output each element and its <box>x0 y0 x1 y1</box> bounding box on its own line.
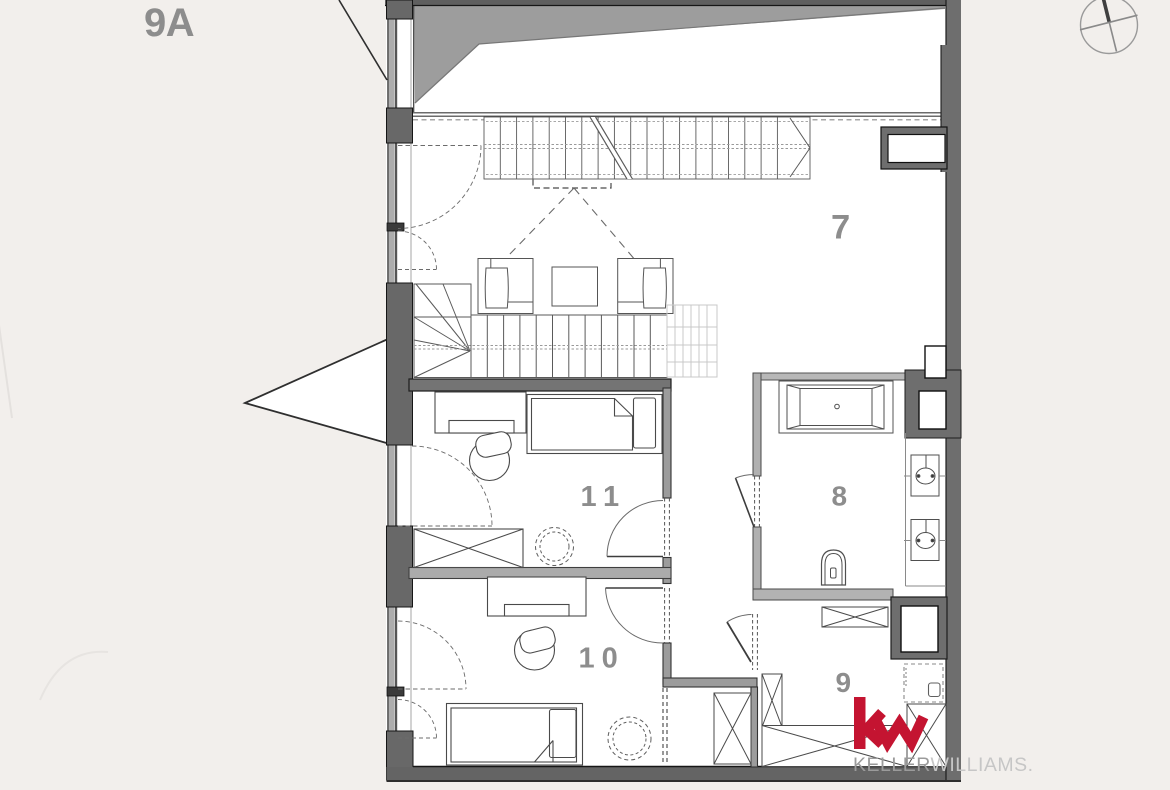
svg-text:9A: 9A <box>144 1 194 45</box>
svg-text:9: 9 <box>836 667 852 698</box>
svg-text:10: 10 <box>579 643 625 675</box>
svg-text:KELLERWILLIAMS.: KELLERWILLIAMS. <box>853 754 1034 776</box>
svg-text:11: 11 <box>581 481 628 513</box>
svg-text:7: 7 <box>831 209 850 247</box>
svg-text:8: 8 <box>832 481 848 512</box>
